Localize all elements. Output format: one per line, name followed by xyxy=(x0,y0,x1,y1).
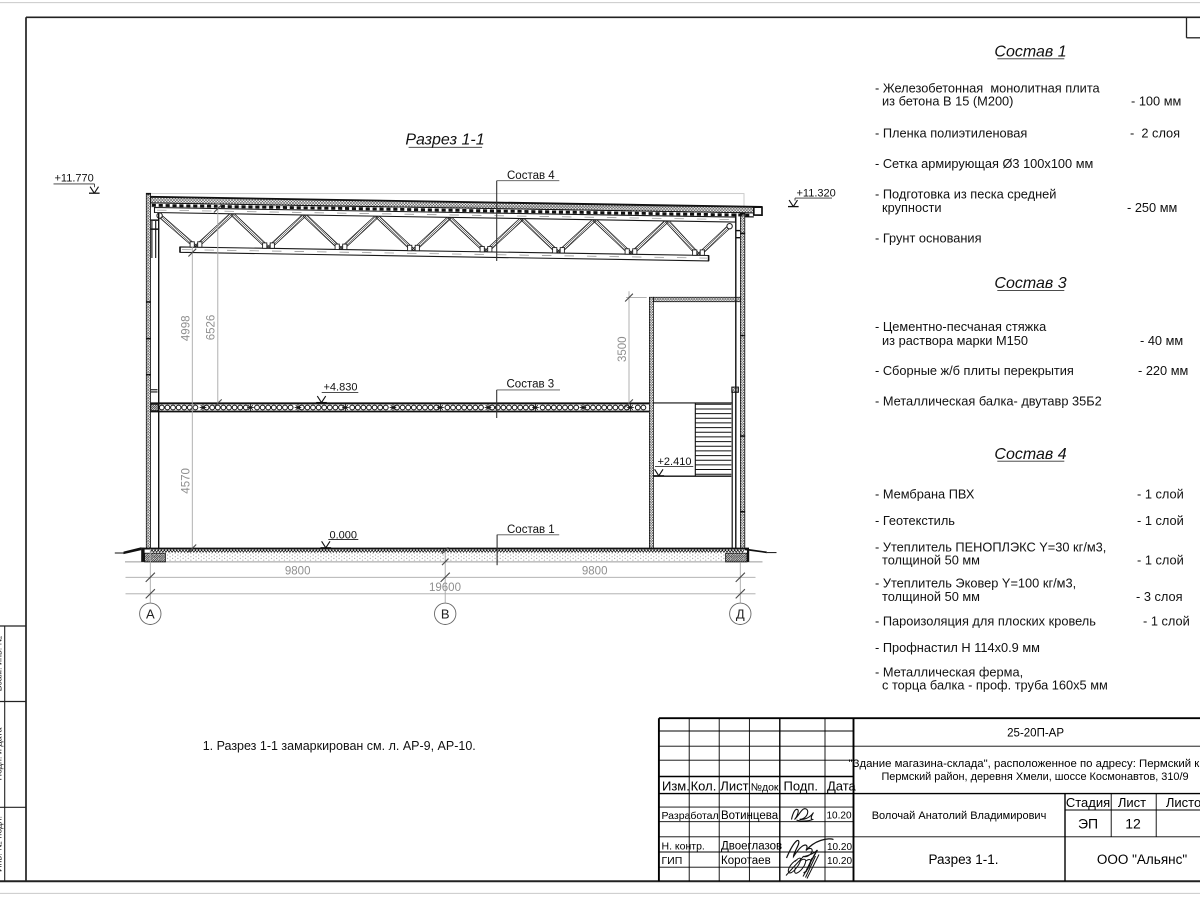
svg-text:4998: 4998 xyxy=(181,316,193,342)
svg-text:- 1 слой: - 1 слой xyxy=(1137,552,1184,567)
svg-text:- 1 слой: - 1 слой xyxy=(1137,487,1184,502)
svg-text:Двоеглазов: Двоеглазов xyxy=(721,841,782,853)
svg-text:толщиной 50 мм: толщиной 50 мм xyxy=(882,589,980,604)
svg-text:- Профнастил Н 114х0.9 мм: - Профнастил Н 114х0.9 мм xyxy=(875,640,1040,655)
svg-text:с торца балка - проф. труба 16: с торца балка - проф. труба 160х5 мм xyxy=(882,678,1108,693)
svg-text:ООО "Альянс": ООО "Альянс" xyxy=(1097,852,1187,867)
svg-text:Разрез 1-1.: Разрез 1-1. xyxy=(928,852,998,867)
svg-text:- Мембрана ПВХ: - Мембрана ПВХ xyxy=(875,487,975,502)
svg-text:+11.320: +11.320 xyxy=(797,187,836,199)
svg-text:Волочай Анатолий Владимирович: Волочай Анатолий Владимирович xyxy=(872,810,1047,822)
svg-text:Состав 1: Состав 1 xyxy=(507,524,555,536)
svg-text:- 3 слоя: - 3 слоя xyxy=(1136,589,1183,604)
svg-text:крупности: крупности xyxy=(882,200,942,215)
svg-text:В: В xyxy=(441,606,450,621)
svg-text:- Металлическая балка- двутавр: - Металлическая балка- двутавр 35Б2 xyxy=(875,393,1102,408)
svg-text:- Сетка армирующая Ø3 100х100: - Сетка армирующая Ø3 100х100 мм xyxy=(875,156,1093,171)
svg-text:Состав 4: Состав 4 xyxy=(507,170,555,182)
svg-text:Лист: Лист xyxy=(1118,795,1146,810)
svg-text:А: А xyxy=(146,606,155,621)
svg-text:1. Разрез 1-1 замаркирован см.: 1. Разрез 1-1 замаркирован см. л. АР-9, … xyxy=(203,739,476,753)
svg-text:- Пленка полиэтиленовая: - Пленка полиэтиленовая xyxy=(875,126,1027,141)
svg-text:- 1 слой: - 1 слой xyxy=(1143,614,1190,629)
svg-text:9800: 9800 xyxy=(582,566,608,578)
svg-text:9800: 9800 xyxy=(285,566,311,578)
svg-text:Взам. инв. №: Взам. инв. № xyxy=(0,635,4,691)
svg-text:- Сборные ж/б плиты перекрытия: - Сборные ж/б плиты перекрытия xyxy=(875,363,1074,378)
svg-text:- 1 слой: - 1 слой xyxy=(1137,513,1184,528)
svg-text:Дата: Дата xyxy=(827,778,857,793)
svg-text:Разрез 1-1: Разрез 1-1 xyxy=(405,132,484,149)
svg-text:- 2 слоя: - 2 слоя xyxy=(1130,126,1180,141)
svg-text:Подп. и дата: Подп. и дата xyxy=(0,727,4,780)
svg-text:4570: 4570 xyxy=(181,468,193,494)
svg-text:- Грунт основания: - Грунт основания xyxy=(875,231,982,246)
svg-text:Д: Д xyxy=(736,606,745,621)
svg-text:из бетона В 15 (М200): из бетона В 15 (М200) xyxy=(882,94,1013,109)
svg-text:"Здание магазина-склада", расп: "Здание магазина-склада", расположенное … xyxy=(849,758,1200,770)
svg-text:3500: 3500 xyxy=(617,336,629,362)
svg-text:- 250 мм: - 250 мм xyxy=(1127,200,1177,215)
svg-text:Пермский район, деревня Хмели,: Пермский район, деревня Хмели, шоссе Кос… xyxy=(881,771,1188,783)
svg-text:Н. контр.: Н. контр. xyxy=(662,840,705,852)
svg-text:из раствора марки М150: из раствора марки М150 xyxy=(882,333,1028,348)
svg-text:Разработал: Разработал xyxy=(662,810,719,822)
svg-text:Подп.: Подп. xyxy=(784,778,819,793)
svg-text:ЭП: ЭП xyxy=(1078,816,1098,832)
svg-text:Состав 3: Состав 3 xyxy=(507,379,555,391)
svg-text:- Геотекстиль: - Геотекстиль xyxy=(875,513,955,528)
svg-text:- 100 мм: - 100 мм xyxy=(1131,94,1181,109)
svg-text:- 40 мм: - 40 мм xyxy=(1140,333,1183,348)
svg-text:Состав 1: Состав 1 xyxy=(994,44,1066,61)
svg-text:Стадия: Стадия xyxy=(1066,795,1110,810)
svg-text:Листов: Листов xyxy=(1166,795,1200,810)
svg-text:10.20: 10.20 xyxy=(826,811,851,822)
svg-text:ГИП: ГИП xyxy=(662,855,683,867)
svg-text:- 220 мм: - 220 мм xyxy=(1138,363,1188,378)
svg-text:- Пароизоляция для плоских кро: - Пароизоляция для плоских кровель xyxy=(875,614,1096,629)
svg-text:6526: 6526 xyxy=(206,315,218,341)
svg-text:Кол.: Кол. xyxy=(691,778,717,793)
svg-text:Изм.: Изм. xyxy=(662,778,690,793)
svg-text:толщиной 50 мм: толщиной 50 мм xyxy=(882,552,980,567)
svg-text:№док.: №док. xyxy=(751,781,782,793)
svg-text:Инв. № подл.: Инв. № подл. xyxy=(0,816,4,872)
svg-text:19600: 19600 xyxy=(429,582,461,594)
svg-text:+4.830: +4.830 xyxy=(324,382,358,394)
svg-text:Состав 3: Состав 3 xyxy=(994,275,1066,292)
svg-text:- Цементно-песчаная стяжка: - Цементно-песчаная стяжка xyxy=(875,319,1047,334)
svg-text:Лист: Лист xyxy=(720,778,748,793)
svg-text:12: 12 xyxy=(1125,816,1141,832)
svg-text:Вотинцева: Вотинцева xyxy=(721,810,779,822)
svg-text:+11.770: +11.770 xyxy=(55,173,94,185)
svg-text:25-20П-АР: 25-20П-АР xyxy=(1007,728,1064,740)
svg-text:10.20: 10.20 xyxy=(827,856,852,867)
svg-text:10.20: 10.20 xyxy=(827,842,852,853)
svg-text:Коротаев: Коротаев xyxy=(721,855,771,867)
svg-text:Состав 4: Состав 4 xyxy=(994,446,1066,463)
